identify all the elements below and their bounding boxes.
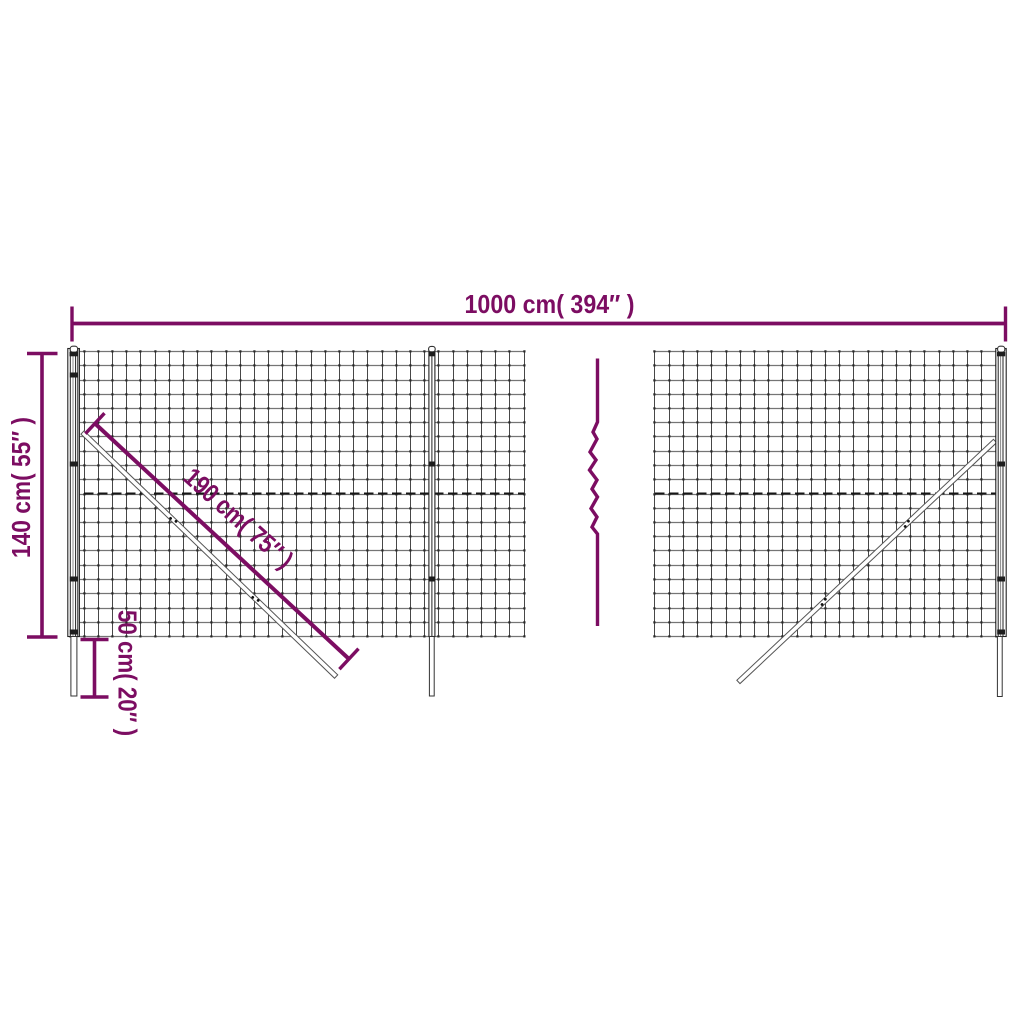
svg-text:1000 cm( 394″ ): 1000 cm( 394″ ) bbox=[465, 289, 635, 319]
svg-text:50 cm( 20″ ): 50 cm( 20″ ) bbox=[113, 610, 143, 736]
svg-text:140 cm( 55″ ): 140 cm( 55″ ) bbox=[6, 417, 36, 558]
